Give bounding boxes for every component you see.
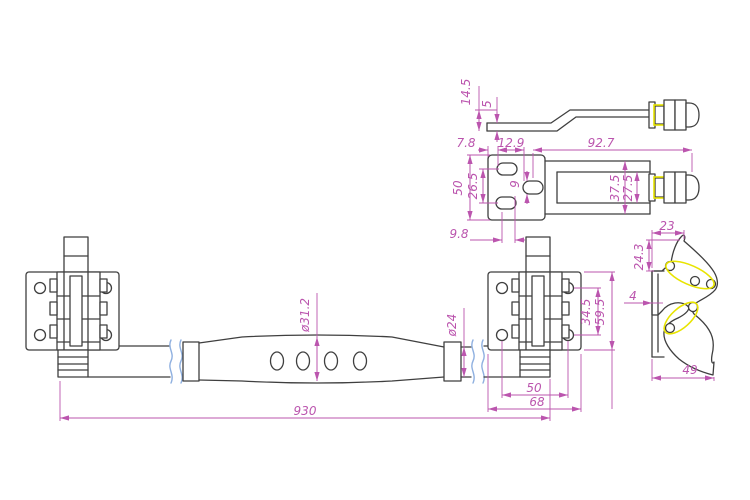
dim-bracket-height: 59.5	[593, 299, 607, 326]
plan-thread-end	[649, 172, 699, 203]
dim-overall-length: 930	[294, 404, 317, 418]
dimensions: 14.5 5 7.8 12.9 92.7 50 26.5 9 37.5	[60, 79, 714, 421]
dim-arm-total-height: 14.5	[459, 79, 473, 106]
plan-slot-center	[523, 181, 543, 194]
dim-slot-spacing: 26.5	[466, 173, 480, 200]
thread-nut-2	[675, 100, 686, 130]
left-bracket	[26, 237, 119, 377]
cam-body	[652, 235, 717, 375]
dim-bracket-width: 68	[529, 395, 545, 409]
dim-cam-tip-height: 24.3	[632, 244, 646, 271]
rod-center-tube	[183, 335, 461, 383]
dim-hole-spacing-vertical: 34.5	[579, 299, 593, 326]
dim-bottom-offset: 9.8	[449, 227, 468, 241]
bracket-foot	[58, 350, 88, 377]
dim-tube-diameter: ø31.2	[298, 298, 312, 333]
thread-dome	[686, 103, 699, 127]
arm-side-view	[487, 100, 699, 131]
bracket-lever	[64, 237, 88, 272]
tube-holes	[271, 352, 367, 370]
dim-edge-to-slot: 7.8	[456, 136, 475, 150]
plan-slot-bottom	[496, 197, 516, 209]
arm-side-thread-end	[649, 100, 699, 130]
thread-nut-2	[675, 172, 686, 203]
dim-arm-length: 92.7	[588, 136, 615, 150]
dim-arm-plate-thickness: 5	[480, 100, 494, 108]
thread-washer	[655, 106, 664, 124]
dim-slot-pitch: 12.9	[498, 136, 525, 150]
dim-flange-thickness: 4	[629, 289, 637, 303]
drawing-canvas: 14.5 5 7.8 12.9 92.7 50 26.5 9 37.5	[0, 0, 750, 500]
dim-hole-spacing-horizontal: 50	[526, 381, 542, 395]
dim-plate-width: 50	[451, 180, 465, 196]
dim-slot-width: 9	[508, 180, 522, 188]
rod	[88, 335, 520, 383]
thread-dome	[686, 175, 699, 200]
thread-nut-1	[664, 100, 675, 130]
dim-cam-overall-width: 49	[682, 363, 697, 377]
dim-channel-inner: 27.5	[621, 175, 635, 202]
rod-break-left	[170, 340, 182, 383]
thread-nut-1	[664, 172, 675, 203]
rod-break-right	[472, 340, 484, 383]
thread-washer	[655, 178, 664, 197]
arm-side-outline	[487, 110, 649, 131]
cam-view	[652, 235, 718, 375]
dim-channel-outer: 37.5	[608, 175, 622, 202]
dim-rod-diameter: ø24	[445, 314, 459, 338]
bracket-mechanism	[50, 272, 107, 350]
dim-cam-top-width: 23	[659, 219, 674, 233]
plan-slot-top	[497, 163, 517, 175]
technical-drawing: 14.5 5 7.8 12.9 92.7 50 26.5 9 37.5	[0, 0, 750, 500]
